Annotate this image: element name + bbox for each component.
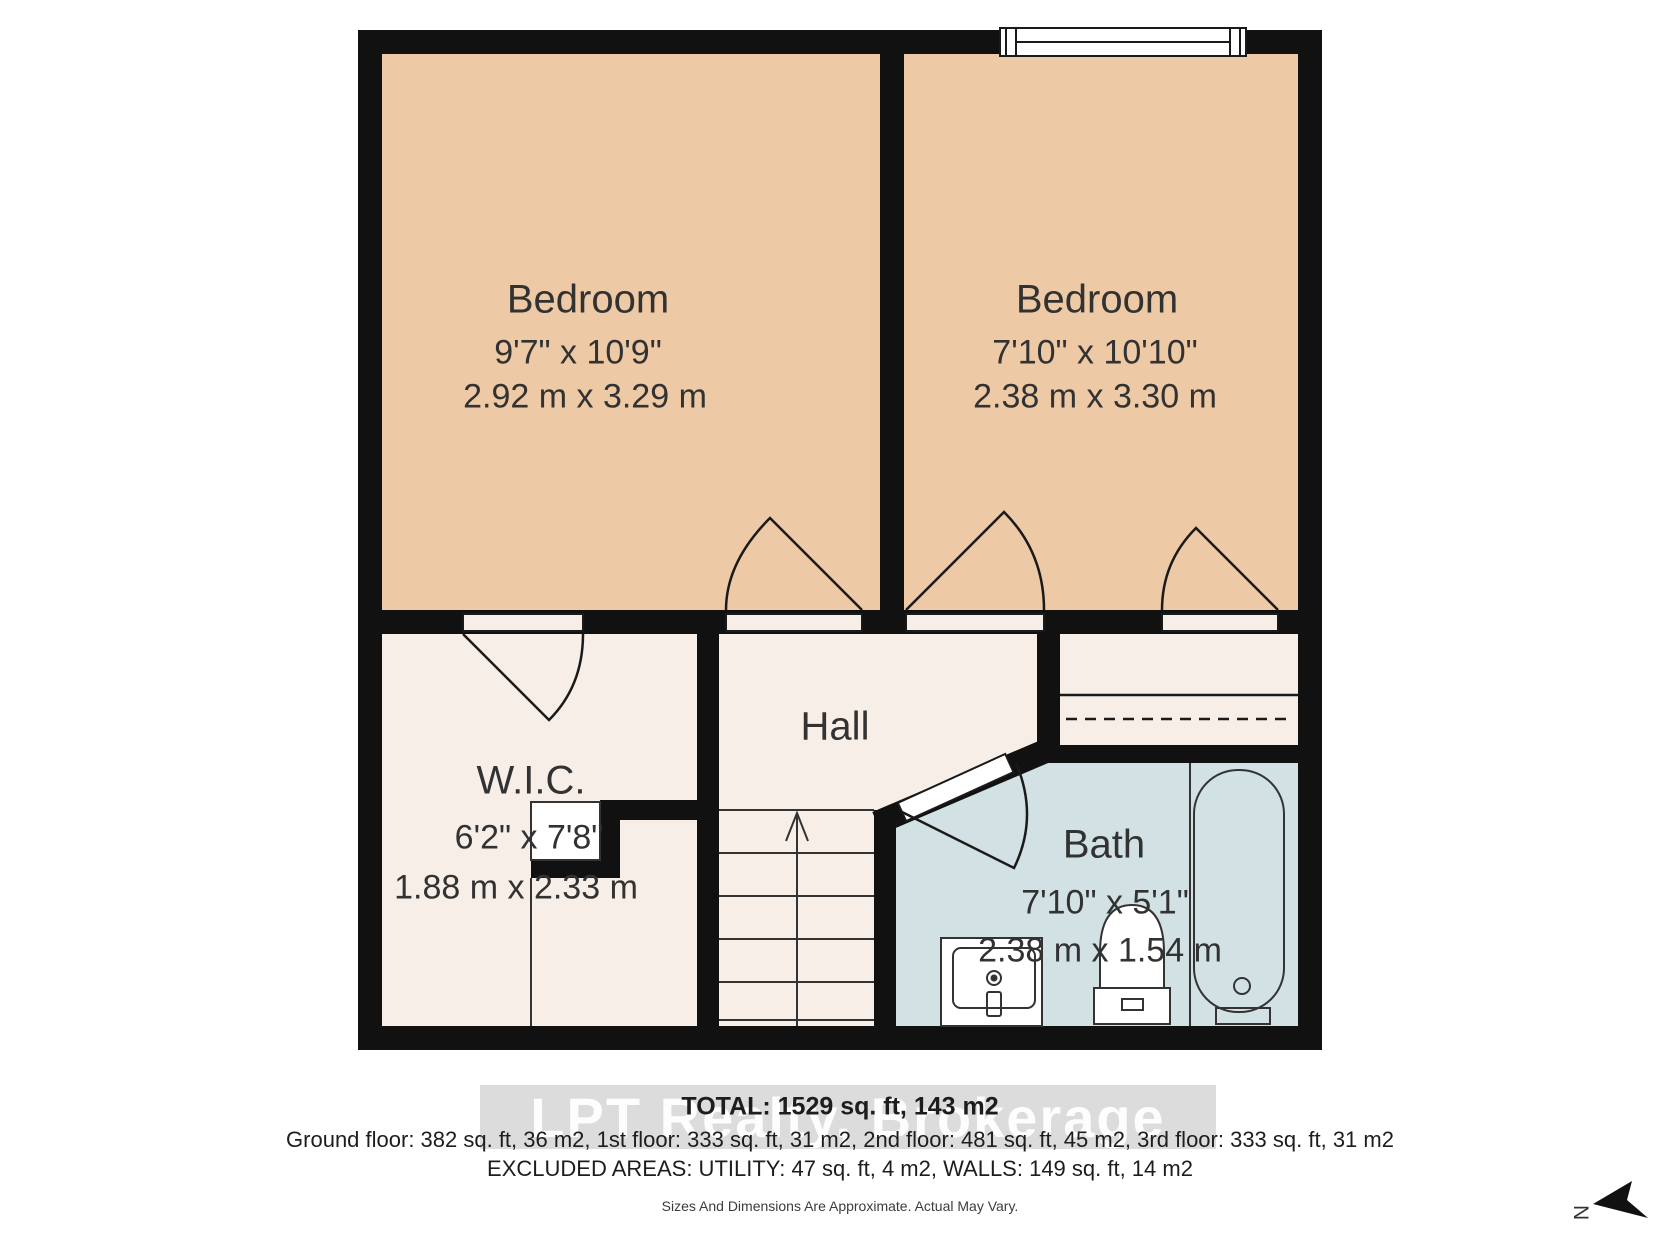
floor-areas-text: Ground floor: 382 sq. ft, 36 m2, 1st flo… [286,1127,1394,1153]
bedroom-floors [382,54,1298,610]
bedroom-1-dim-imperial: 9'7" x 10'9" [494,334,662,373]
bedroom-2-dim-metric: 2.38 m x 3.30 m [973,378,1217,417]
closet-door-threshold [1162,614,1278,631]
wall-hall-left [697,634,719,1026]
wall-outer-left [358,30,382,1050]
disclaimer-text: Sizes And Dimensions Are Approximate. Ac… [662,1198,1019,1214]
wall-outer-bottom [358,1026,1322,1050]
bedroom-1-floor [382,54,880,610]
bath-dim-imperial: 7'10" x 5'1" [1021,884,1189,923]
wic-dim-metric: 1.88 m x 2.33 m [394,869,638,908]
bedroom-1-label: Bedroom [507,278,669,323]
sink-faucet-dot [992,976,997,981]
bedroom-2-label: Bedroom [1016,278,1178,323]
bedroom-1-dim-metric: 2.92 m x 3.29 m [463,378,707,417]
north-arrow-icon [1593,1181,1648,1218]
wall-stairs-right [874,810,896,1026]
bedroom-2-dim-imperial: 7'10" x 10'10" [992,334,1197,373]
wall-outer-right [1298,30,1322,1050]
bath-label: Bath [1063,823,1145,868]
wic-door-threshold [463,614,583,631]
toilet-tank [1094,988,1170,1024]
bath-dim-metric: 2.38 m x 1.54 m [978,932,1222,971]
hall-label: Hall [801,705,870,750]
wic-dim-imperial: 6'2" x 7'8" [455,819,604,858]
floorplan-drawing: N [0,0,1680,1260]
wic-label: W.I.C. [477,759,586,804]
floorplan-page: N Bedroom 9'7" x 10'9" 2.92 m x 3.29 m B… [0,0,1680,1260]
north-arrow: N [1569,1181,1648,1220]
north-label: N [1569,1205,1592,1220]
wall-bedroom-divider [880,54,904,634]
wall-closet-bottom [1037,745,1298,763]
bedroom-1-door-threshold [726,614,862,631]
bedroom-2-floor [904,54,1298,610]
excluded-areas-text: EXCLUDED AREAS: UTILITY: 47 sq. ft, 4 m2… [487,1156,1193,1182]
bedroom-2-window [1000,28,1246,56]
window-post-right [1230,28,1240,56]
window-post-left [1006,28,1016,56]
bedroom-2-door-threshold [906,614,1044,631]
total-area-text: TOTAL: 1529 sq. ft, 143 m2 [681,1093,998,1122]
